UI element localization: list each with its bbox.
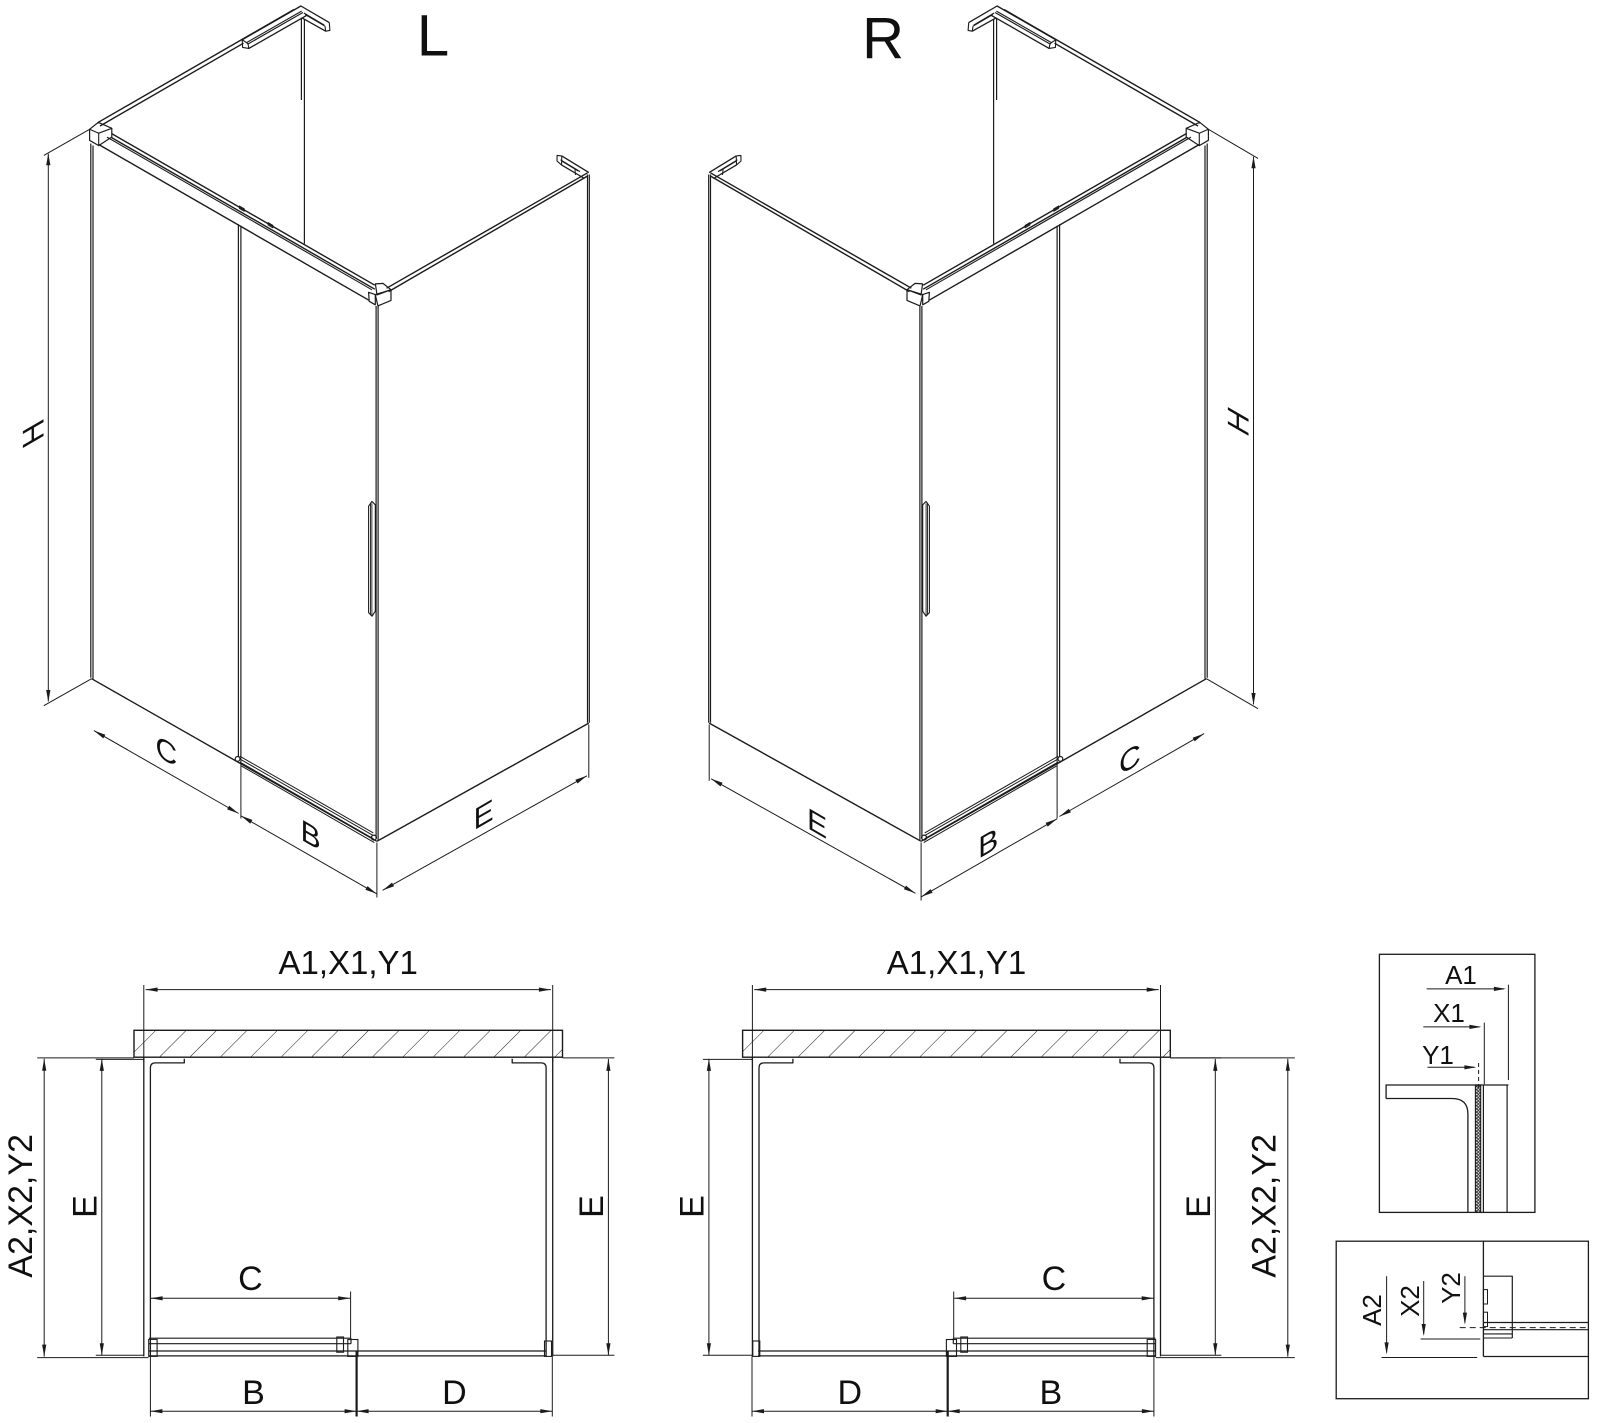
svg-text:A1,X1,Y1: A1,X1,Y1 [278, 944, 417, 981]
svg-text:A2: A2 [1357, 1294, 1387, 1326]
svg-text:Y2: Y2 [1436, 1272, 1466, 1304]
svg-text:D: D [838, 1374, 863, 1412]
svg-text:A1: A1 [1445, 960, 1477, 990]
svg-text:X2: X2 [1395, 1285, 1425, 1317]
svg-text:B: B [1039, 1374, 1062, 1412]
svg-text:X1: X1 [1433, 998, 1465, 1028]
svg-text:E: E [673, 1195, 711, 1218]
svg-text:A1,X1,Y1: A1,X1,Y1 [887, 944, 1026, 981]
svg-text:A2,X2,Y2: A2,X2,Y2 [1245, 1134, 1283, 1278]
svg-text:D: D [442, 1374, 467, 1412]
svg-text:R: R [862, 6, 904, 71]
svg-text:A2,X2,Y2: A2,X2,Y2 [2, 1134, 40, 1278]
svg-text:L: L [417, 4, 449, 69]
svg-text:Y1: Y1 [1422, 1040, 1454, 1070]
svg-text:B: B [242, 1374, 265, 1412]
svg-text:C: C [1042, 1260, 1067, 1298]
svg-text:E: E [573, 1195, 611, 1218]
svg-text:C: C [238, 1260, 263, 1298]
svg-text:E: E [66, 1195, 104, 1218]
svg-text:E: E [1180, 1195, 1218, 1218]
